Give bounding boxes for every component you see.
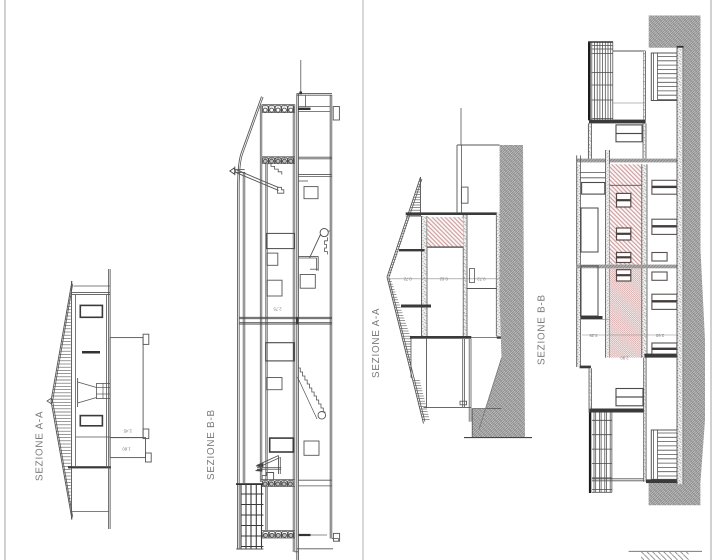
svg-text:2.45: 2.45 [123,429,132,434]
svg-text:SEZIONE B-B: SEZIONE B-B [206,409,217,480]
svg-text:SEZIONE B-B: SEZIONE B-B [537,294,548,365]
svg-text:0.72: 0.72 [477,277,486,282]
svg-text:0.72: 0.72 [403,277,412,282]
svg-text:1.80: 1.80 [122,447,131,452]
svg-text:2.90: 2.90 [620,355,629,360]
svg-text:3.25: 3.25 [589,333,598,338]
svg-text:SEZIONE A-A: SEZIONE A-A [371,308,382,378]
svg-text:0.62: 0.62 [439,277,448,282]
svg-text:2.60: 2.60 [655,333,664,338]
svg-text:SEZIONE A-A: SEZIONE A-A [35,411,46,481]
svg-text:2.75: 2.75 [273,307,282,312]
